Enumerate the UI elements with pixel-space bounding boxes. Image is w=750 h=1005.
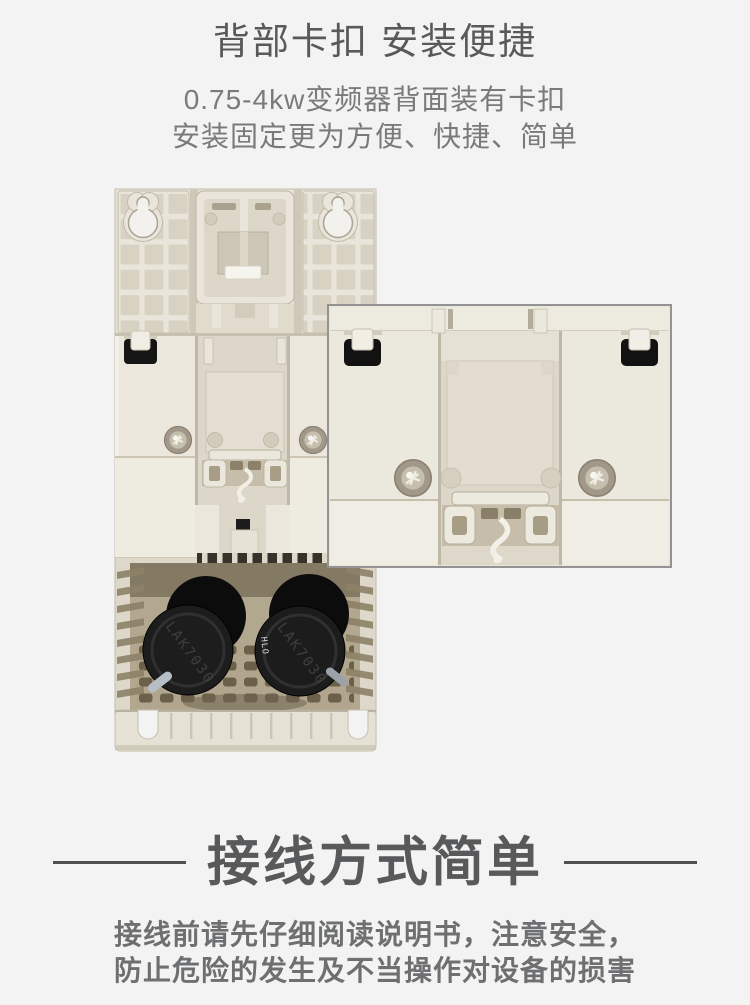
inset-screw-left — [395, 460, 431, 496]
mount-keyhole-left — [124, 193, 163, 242]
vfd-photo-svg: LAK7030 LAK7030 HLO — [0, 185, 750, 760]
inset-zoom-box — [328, 305, 671, 567]
divider-right — [564, 861, 697, 864]
inset-din-release-clip — [442, 492, 559, 565]
mount-wing-left — [118, 191, 189, 333]
product-detail-page: 背部卡扣 安装便捷 0.75-4kw变频器背面装有卡扣 安装固定更为方便、快捷、… — [0, 0, 750, 1005]
top-bracket-frame — [196, 191, 294, 333]
flange-notch-left — [138, 710, 158, 739]
wiring-section-description: 接线前请先仔细阅读说明书，注意安全， 防止危险的发生及不当操作对设备的损害 — [0, 917, 750, 989]
wiring-desc-line-1: 接线前请先仔细阅读说明书，注意安全， — [114, 919, 636, 950]
inset-snap-clip-right — [621, 329, 659, 366]
bottom-vent-cage: LAK7030 LAK7030 HLO — [117, 553, 373, 712]
clip-section-title: 背部卡扣 安装便捷 — [0, 20, 750, 64]
mounting-screw-left — [165, 427, 192, 454]
clip-desc-line-1: 0.75-4kw变频器背面装有卡扣 — [184, 84, 567, 115]
wiring-section-header: 接线方式简单 — [0, 827, 750, 897]
groove-right — [294, 189, 302, 335]
vfd-back-figure: LAK7030 LAK7030 HLO — [0, 185, 750, 760]
clip-section-description: 0.75-4kw变频器背面装有卡扣 安装固定更为方便、快捷、简单 — [0, 81, 750, 155]
capacitor-right-small-print: HLO — [258, 636, 270, 655]
flange-notch-right — [348, 710, 368, 739]
mounting-screw-right — [300, 427, 327, 454]
inset-screw-right — [579, 460, 615, 496]
divider-left — [53, 861, 186, 864]
mount-keyhole-right — [319, 193, 358, 242]
wiring-section-title: 接线方式简单 — [207, 836, 543, 889]
inset-snap-clip-left — [344, 329, 382, 366]
wiring-desc-line-2: 防止危险的发生及不当操作对设备的损害 — [114, 955, 636, 986]
clip-desc-line-2: 安装固定更为方便、快捷、简单 — [172, 121, 578, 152]
